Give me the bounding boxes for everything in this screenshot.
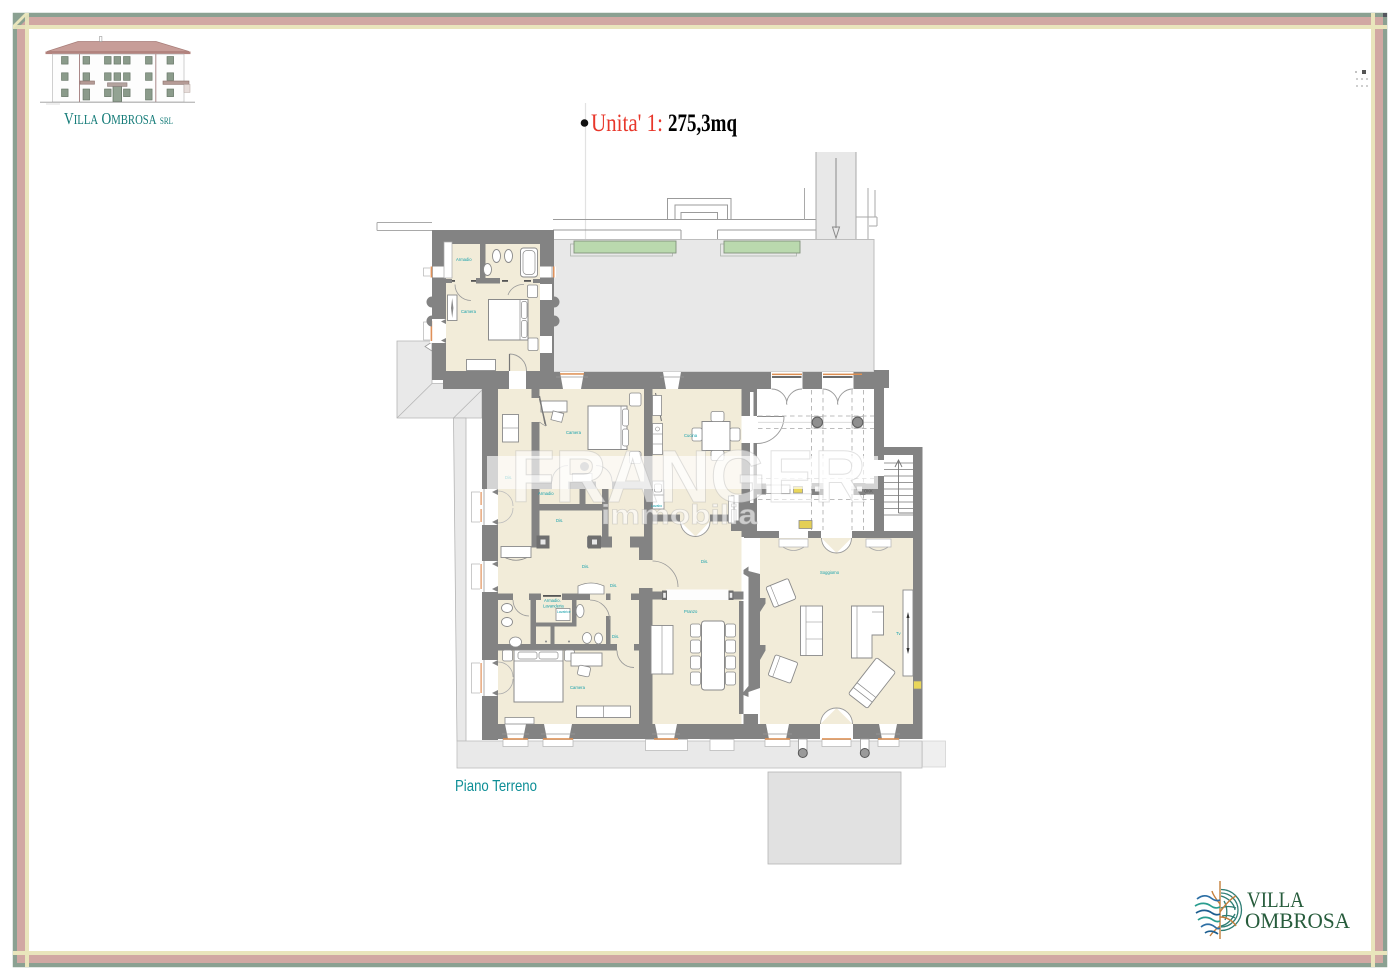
svg-text:Dis.: Dis. [582,564,589,569]
svg-text:Dis.: Dis. [610,583,617,588]
svg-text:Lavanderia: Lavanderia [543,604,564,609]
svg-text:Camera: Camera [461,309,477,314]
svg-text:Pranzo: Pranzo [684,609,698,614]
svg-text:OMBROSA: OMBROSA [1245,908,1350,933]
svg-text:Lavatrice: Lavatrice [557,610,571,614]
svg-text:Dis.: Dis. [556,518,563,523]
svg-text:Piano Terreno: Piano Terreno [455,778,537,795]
svg-text:Armadio.: Armadio. [544,598,561,603]
svg-text:Dis.: Dis. [612,634,619,639]
svg-text:VILLA OMBROSA SRL: VILLA OMBROSA SRL [64,109,173,128]
svg-text:Armadio: Armadio [456,257,472,262]
svg-text:Dis.: Dis. [701,559,708,564]
svg-text:275,3mq: 275,3mq [668,110,737,137]
svg-text:Unita' 1:: Unita' 1: [591,110,663,137]
svg-text:Camera: Camera [570,685,586,690]
svg-text:immobilia: immobilia [601,499,757,530]
svg-text:Soggiorno: Soggiorno [820,570,840,575]
